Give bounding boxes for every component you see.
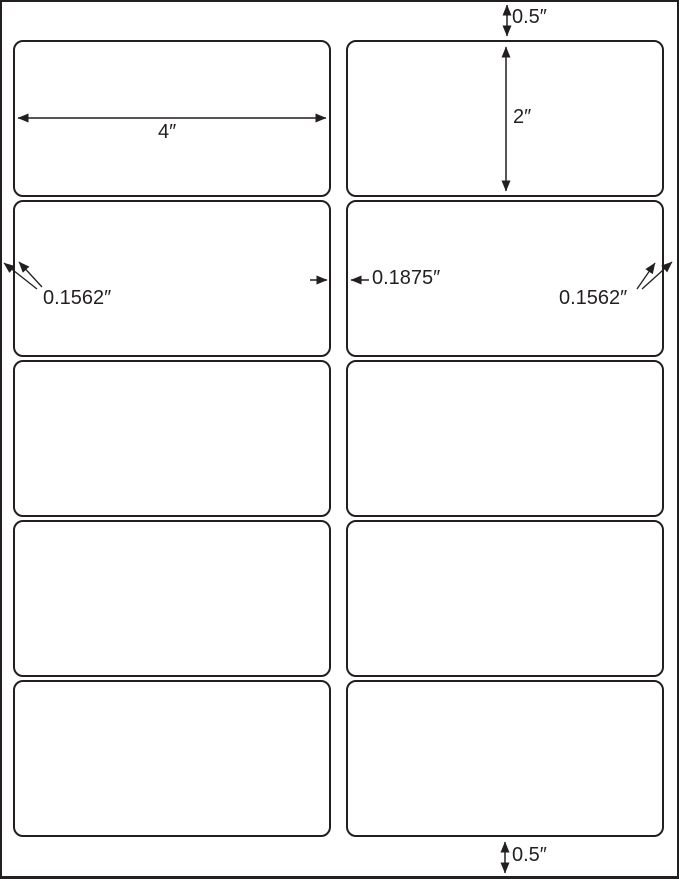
label-r5-c1: [13, 680, 331, 837]
label-r2-c1: [13, 200, 331, 357]
label-r4-c2: [346, 520, 664, 677]
top-margin-dimension: 0.5″: [512, 6, 547, 29]
label-width-dimension: 4″: [158, 121, 176, 144]
label-height-dimension: 2″: [513, 106, 531, 129]
label-r1-c2: [346, 40, 664, 197]
left-margin-dimension: 0.1562″: [43, 287, 111, 310]
label-r3-c1: [13, 360, 331, 517]
column-gap-dimension: 0.1875″: [372, 267, 440, 290]
bottom-margin-dimension: 0.5″: [512, 844, 547, 867]
label-r1-c1: [13, 40, 331, 197]
label-r4-c1: [13, 520, 331, 677]
right-margin-dimension: 0.1562″: [559, 287, 627, 310]
label-r5-c2: [346, 680, 664, 837]
label-r3-c2: [346, 360, 664, 517]
